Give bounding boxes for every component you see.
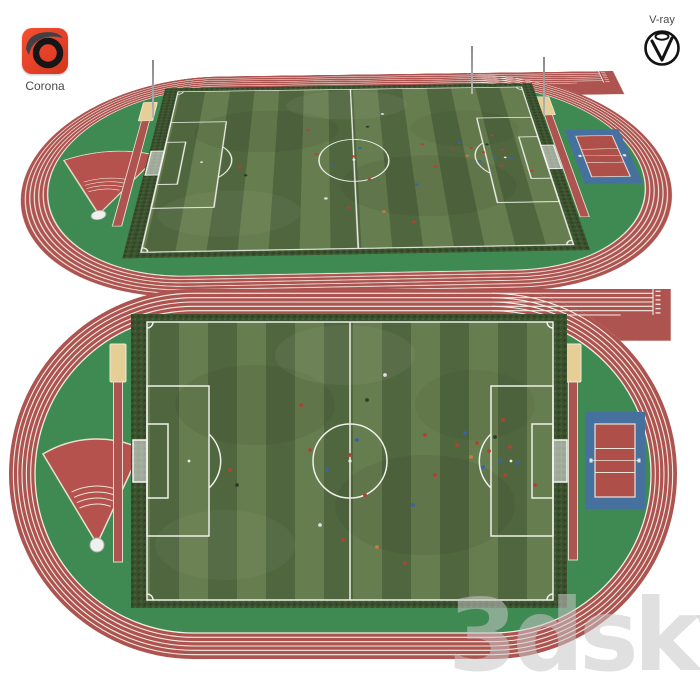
corona-icon — [22, 28, 68, 74]
flag-pole-left — [152, 60, 154, 118]
vray-icon — [642, 28, 682, 68]
stadium-perspective-view — [0, 69, 700, 306]
stadium-perspective-wrapper — [0, 69, 700, 306]
vray-logo: V-ray — [630, 14, 694, 73]
flag-pole-center — [471, 46, 473, 94]
vray-label: V-ray — [630, 14, 694, 26]
watermark: 3dsky — [448, 586, 700, 686]
render-canvas: Corona V-ray 3dsky — [0, 0, 700, 700]
flag-pole-right — [543, 57, 545, 115]
